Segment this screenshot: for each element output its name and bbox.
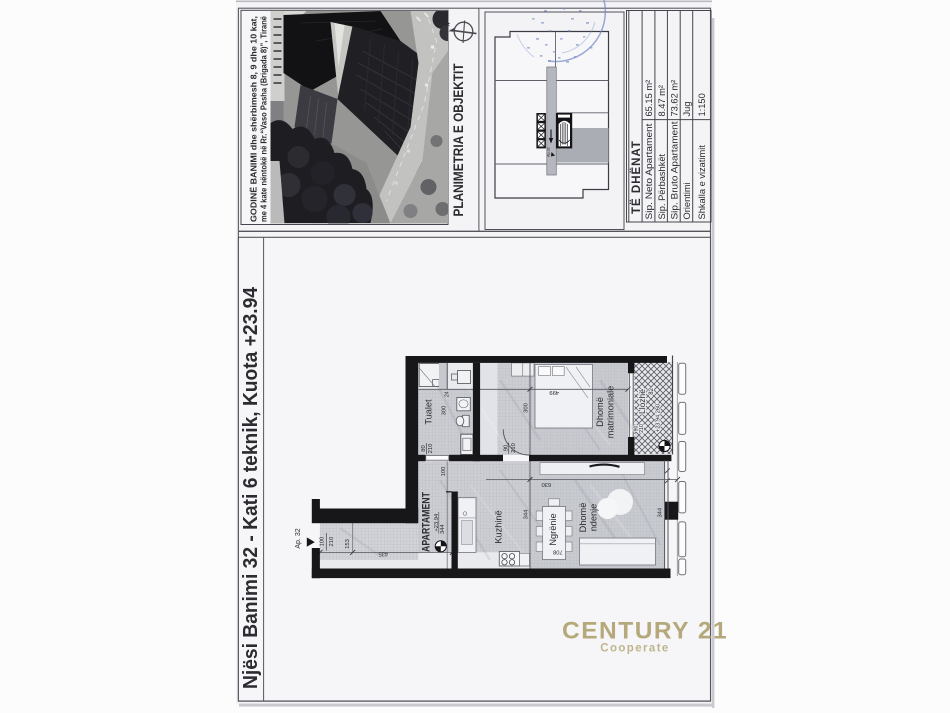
svg-text:8.47 m²: 8.47 m² (657, 85, 667, 117)
svg-text:GODINË BANIMI dhe shërbimesh 8: GODINË BANIMI dhe shërbimesh 8, 9 dhe 10… (249, 16, 259, 222)
svg-text:Ap. 32: Ap. 32 (295, 528, 302, 548)
svg-text:Dhomë: Dhomë (595, 397, 605, 427)
svg-text:me 4 kate nëntokë në Rr.“Vaso: me 4 kate nëntokë në Rr.“Vaso Pasha (Bri… (259, 16, 269, 222)
svg-text:300: 300 (524, 403, 530, 413)
svg-text:210: 210 (639, 424, 645, 433)
svg-text:630: 630 (541, 481, 551, 487)
svg-text:73.62 m²: 73.62 m² (669, 80, 679, 117)
svg-text:100: 100 (441, 467, 447, 477)
svg-text:65.15 m²: 65.15 m² (644, 80, 654, 117)
svg-text:Sip. Përbashkët: Sip. Përbashkët (657, 153, 667, 219)
svg-text:Sip. Neto Apartament: Sip. Neto Apartament (644, 123, 654, 219)
svg-text:210: 210 (428, 444, 434, 454)
svg-text:+23.94 260: +23.94 260 (656, 404, 662, 432)
svg-text:Llozhë: Llozhë (637, 389, 647, 414)
svg-text:Sip. Bruto Apartament: Sip. Bruto Apartament (669, 121, 679, 219)
svg-text:Ngrënie: Ngrënie (548, 513, 558, 545)
svg-text:344: 344 (658, 507, 664, 517)
svg-text:82: 82 (649, 387, 655, 394)
svg-text:300: 300 (442, 406, 448, 416)
svg-text:499: 499 (549, 389, 559, 395)
svg-text:APARTAMENT: APARTAMENT (421, 492, 433, 552)
svg-text:210: 210 (329, 537, 335, 547)
svg-text:344: 344 (524, 509, 530, 519)
svg-text:1:150: 1:150 (697, 93, 707, 116)
svg-text:TË DHËNAT: TË DHËNAT (630, 140, 643, 214)
svg-text:ndenje: ndenje (588, 504, 598, 532)
svg-text:CENTURY 21: CENTURY 21 (562, 618, 728, 645)
svg-text:Dhomë: Dhomë (578, 503, 588, 533)
svg-text:153: 153 (345, 539, 351, 549)
svg-text:Shkalla e vizatimit: Shkalla e vizatimit (697, 145, 707, 220)
svg-text:Kuzhinë: Kuzhinë (494, 510, 504, 543)
svg-text:PLANIMETRIA E OBJEKTIT: PLANIMETRIA E OBJEKTIT (451, 63, 466, 216)
svg-text:Cooperate: Cooperate (600, 643, 669, 655)
svg-text:Jug: Jug (682, 102, 692, 117)
svg-text:Orientimi: Orientimi (682, 182, 692, 219)
svg-text:100: 100 (320, 537, 326, 547)
svg-text:708: 708 (553, 548, 563, 554)
svg-text:Ap.32: Ap.32 (547, 147, 551, 157)
svg-text:Tualet: Tualet (424, 399, 434, 425)
svg-text:80: 80 (421, 445, 427, 451)
svg-text:N: N (446, 22, 452, 26)
svg-text:344: 344 (440, 524, 446, 534)
svg-text:Njësi Banimi 32 - Kati 6 tekn: Njësi Banimi 32 - Kati 6 teknik, Kuota +… (240, 286, 262, 689)
svg-text:matrimoniale: matrimoniale (606, 386, 616, 439)
svg-text:210: 210 (511, 443, 517, 453)
svg-text:24: 24 (444, 391, 450, 397)
svg-text:435: 435 (378, 551, 388, 557)
